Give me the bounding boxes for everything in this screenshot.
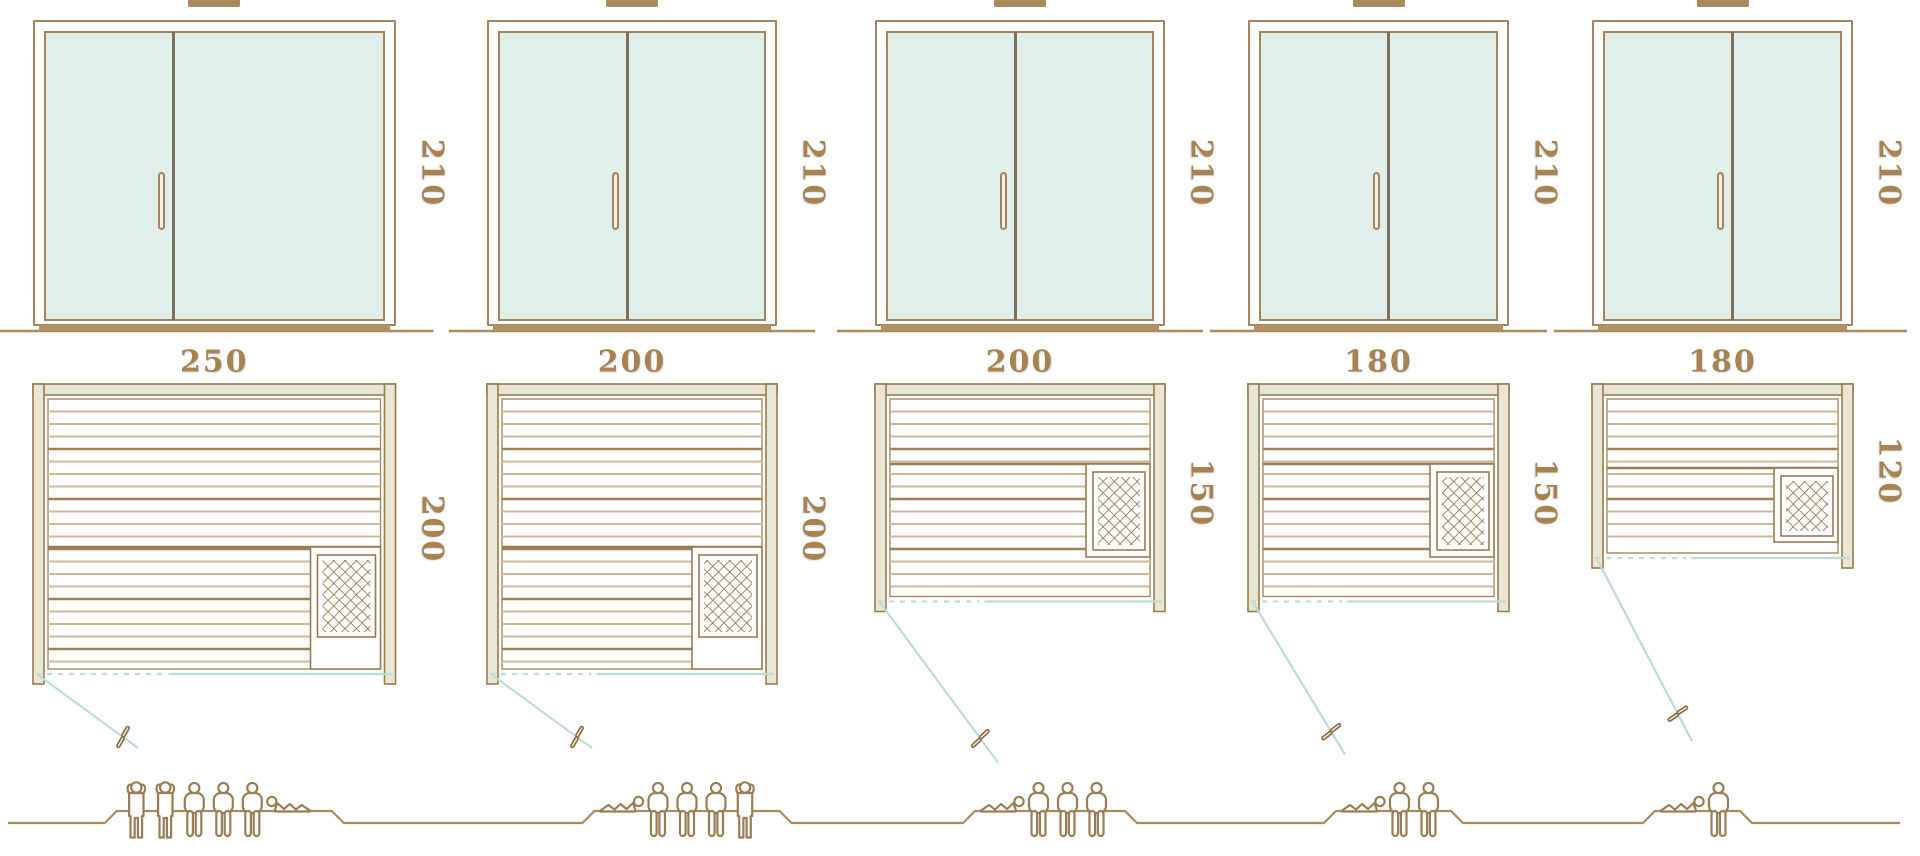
depth-dimension-label: 150 [1528, 458, 1563, 527]
sauna-column: 210 180 120 [1592, 0, 1853, 856]
door-leaf-divider [172, 32, 175, 320]
door-sill [881, 325, 1159, 331]
sauna-column: 210 200 150 [875, 0, 1165, 856]
door-sill [1598, 325, 1847, 331]
glass-door-panel [886, 31, 1154, 321]
sauna-front-elevation [487, 20, 777, 326]
door-handle [1717, 172, 1724, 230]
width-dimension-label: 180 [1344, 345, 1413, 380]
sauna-front-elevation [1592, 20, 1853, 326]
glass-door-panel [498, 31, 766, 321]
depth-dimension-label: 200 [414, 495, 449, 564]
door-sill [39, 325, 390, 331]
width-dimension-label: 200 [598, 345, 667, 380]
door-leaf-divider [626, 32, 629, 320]
door-handle [158, 172, 165, 230]
sauna-column: 210 250 200 [33, 0, 396, 856]
door-sill [493, 325, 771, 331]
door-handle [1373, 172, 1380, 230]
roof-vent-bar [994, 0, 1046, 7]
depth-dimension-label: 120 [1872, 437, 1907, 506]
door-leaf-divider [1731, 32, 1734, 320]
glass-door-panel [44, 31, 385, 321]
roof-vent-bar [606, 0, 658, 7]
roof-vent-bar [1697, 0, 1749, 7]
roof-vent-bar [188, 0, 240, 7]
sauna-front-elevation [875, 20, 1165, 326]
door-leaf-divider [1014, 32, 1017, 320]
sauna-column: 210 200 200 [487, 0, 777, 856]
door-sill [1254, 325, 1503, 331]
sauna-front-elevation [33, 20, 396, 326]
width-dimension-label: 180 [1688, 345, 1757, 380]
height-dimension-label: 210 [414, 139, 449, 208]
height-dimension-label: 210 [1184, 139, 1219, 208]
depth-dimension-label: 150 [1184, 458, 1219, 527]
roof-vent-bar [1353, 0, 1405, 7]
height-dimension-label: 210 [796, 139, 831, 208]
width-dimension-label: 250 [180, 345, 249, 380]
width-dimension-label: 200 [986, 345, 1055, 380]
depth-dimension-label: 200 [796, 495, 831, 564]
sauna-front-elevation [1248, 20, 1509, 326]
sauna-size-diagram: 210 250 200 210 200 200 210 200 150 [0, 0, 1920, 856]
door-leaf-divider [1387, 32, 1390, 320]
door-handle [1000, 172, 1007, 230]
sauna-column: 210 180 150 [1248, 0, 1509, 856]
door-handle [612, 172, 619, 230]
height-dimension-label: 210 [1872, 139, 1907, 208]
height-dimension-label: 210 [1528, 139, 1563, 208]
